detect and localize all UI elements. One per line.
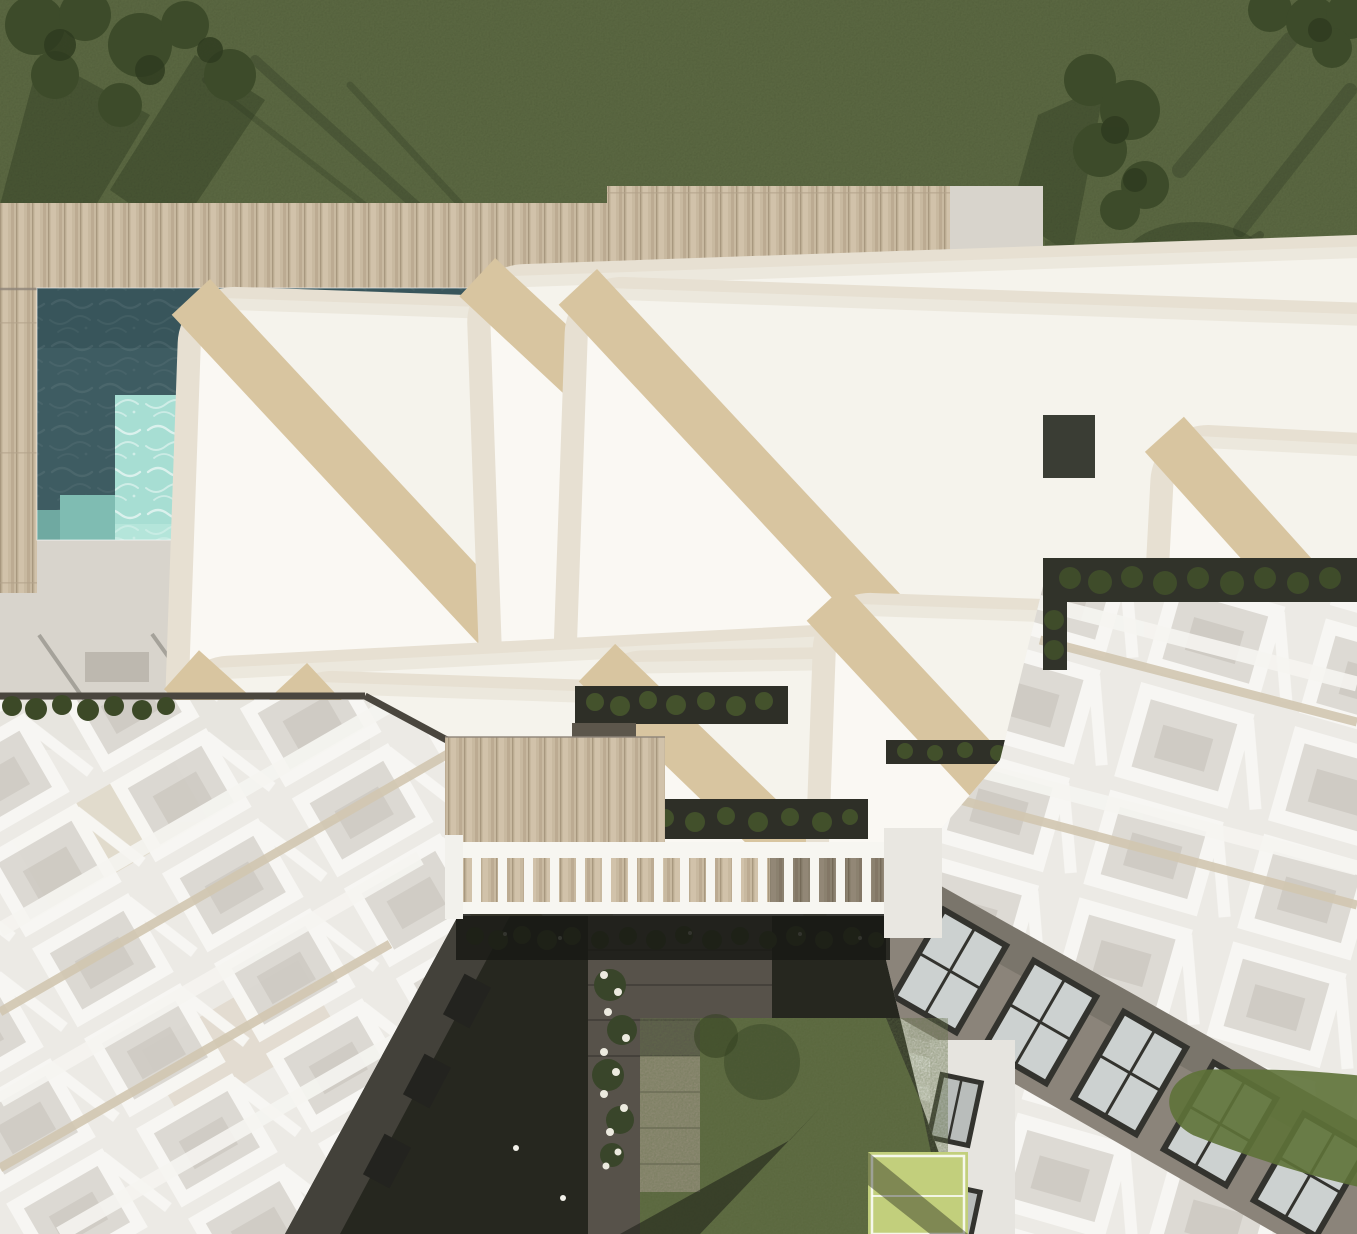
green-court <box>868 1152 968 1234</box>
bridge-rail-top <box>456 842 890 858</box>
bridge <box>445 828 942 960</box>
bridge-abutment <box>884 828 942 938</box>
wood-deck-left-edge <box>0 203 37 593</box>
lawn-dark-pad <box>1043 415 1095 478</box>
scene-svg <box>0 0 1357 1234</box>
wood-landing <box>445 737 665 845</box>
white-speck <box>513 1145 519 1151</box>
bridge-shadow <box>456 914 890 960</box>
bridge-rail-bottom <box>456 902 890 914</box>
aerial-render-canvas <box>0 0 1357 1234</box>
